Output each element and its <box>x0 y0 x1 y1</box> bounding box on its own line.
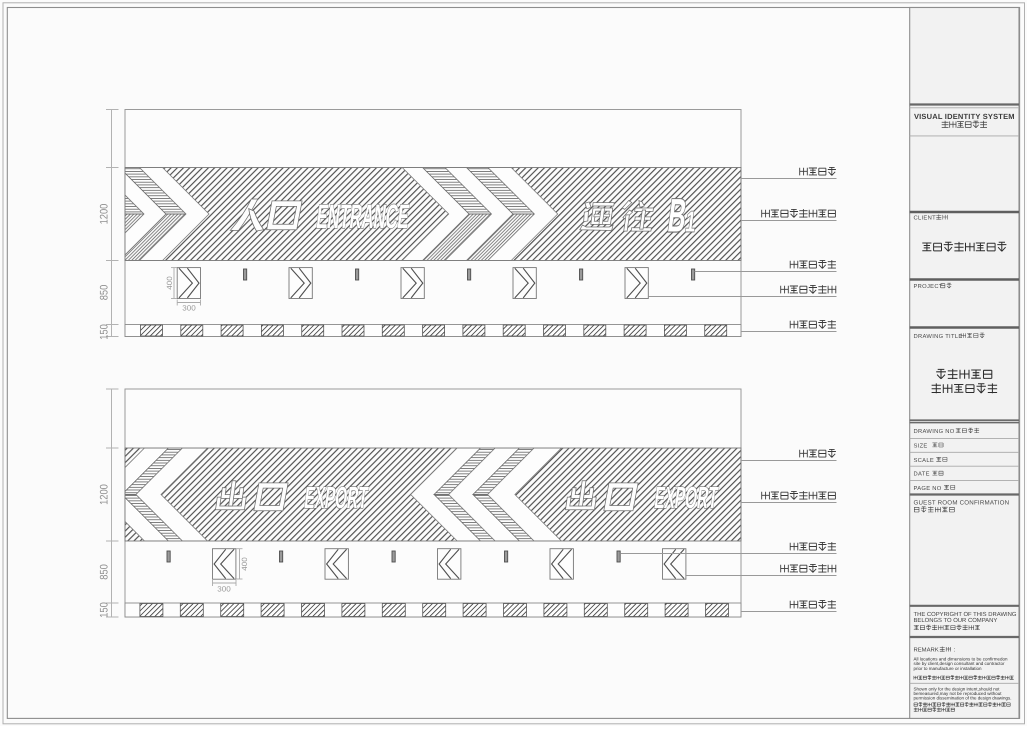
svg-text:400: 400 <box>240 557 249 571</box>
svg-text:1200: 1200 <box>98 204 110 225</box>
svg-text:850: 850 <box>98 564 110 580</box>
svg-text:EXPORT: EXPORT <box>303 481 370 515</box>
svg-text:150: 150 <box>98 324 110 340</box>
svg-text:ENTRANCE: ENTRANCE <box>315 198 412 236</box>
svg-text:1200: 1200 <box>98 484 110 505</box>
svg-text:SCALE: SCALE <box>914 457 935 464</box>
svg-text:THE COPYRIGHT OF THIS DRAWING: THE COPYRIGHT OF THIS DRAWING <box>914 611 1017 618</box>
svg-text:400: 400 <box>165 276 174 290</box>
svg-text:PROJECT: PROJECT <box>914 283 943 290</box>
svg-text:300: 300 <box>182 304 196 313</box>
svg-text:prior to manufacture or instal: prior to manufacture or installation <box>914 666 983 671</box>
svg-text:300: 300 <box>217 585 231 594</box>
svg-text:850: 850 <box>98 285 110 301</box>
svg-text:150: 150 <box>98 602 110 618</box>
svg-text:PAGE NO: PAGE NO <box>914 485 942 492</box>
svg-text:GUEST ROOM CONFIRMATION: GUEST ROOM CONFIRMATION <box>914 500 1010 507</box>
svg-text:REMARK: REMARK <box>914 647 939 654</box>
svg-text:permission dissemination of th: permission dissemination of the design d… <box>914 696 1012 701</box>
svg-text:DRAWING TITLE: DRAWING TITLE <box>914 333 963 340</box>
svg-text:SIZE: SIZE <box>914 442 928 449</box>
svg-text:EXPORT: EXPORT <box>653 481 720 515</box>
svg-text:VISUAL IDENTITY SYSTEM: VISUAL IDENTITY SYSTEM <box>914 112 1015 121</box>
svg-text:CLIENT: CLIENT <box>914 215 937 222</box>
svg-text:DRAWING NO: DRAWING NO <box>914 428 955 435</box>
svg-text:BELONGS TO OUR COMPANY: BELONGS TO OUR COMPANY <box>914 617 998 624</box>
svg-text:DATE: DATE <box>914 472 930 478</box>
